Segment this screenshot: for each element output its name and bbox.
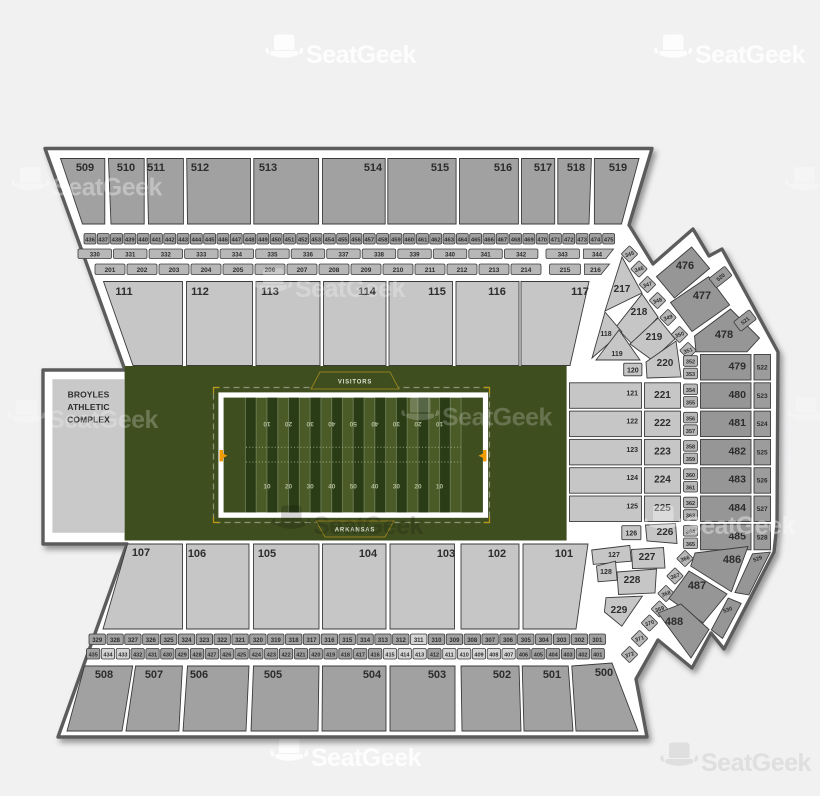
- svg-text:445: 445: [205, 238, 215, 244]
- svg-text:321: 321: [235, 638, 246, 644]
- svg-text:SeatGeek: SeatGeek: [695, 41, 806, 69]
- svg-text:362: 362: [686, 501, 695, 507]
- svg-text:127: 127: [608, 552, 620, 559]
- svg-text:SeatGeek: SeatGeek: [442, 404, 553, 432]
- svg-text:330: 330: [90, 252, 101, 258]
- svg-text:455: 455: [338, 238, 348, 244]
- svg-text:315: 315: [342, 638, 353, 644]
- svg-text:417: 417: [356, 652, 365, 658]
- svg-text:482: 482: [728, 445, 746, 457]
- svg-text:116: 116: [488, 286, 506, 298]
- svg-text:519: 519: [609, 162, 627, 174]
- svg-text:409: 409: [474, 652, 483, 658]
- svg-text:503: 503: [428, 669, 446, 681]
- svg-text:452: 452: [298, 238, 308, 244]
- svg-text:341: 341: [481, 252, 492, 258]
- svg-text:476: 476: [676, 260, 694, 272]
- svg-text:488: 488: [665, 616, 683, 628]
- svg-text:354: 354: [686, 388, 696, 394]
- svg-text:342: 342: [516, 252, 527, 258]
- svg-text:454: 454: [325, 238, 335, 244]
- svg-text:462: 462: [431, 238, 441, 244]
- svg-text:449: 449: [258, 238, 268, 244]
- svg-text:448: 448: [245, 238, 255, 244]
- svg-text:461: 461: [418, 238, 428, 244]
- svg-text:480: 480: [728, 389, 746, 401]
- svg-text:408: 408: [489, 652, 498, 658]
- svg-text:214: 214: [521, 267, 532, 274]
- svg-text:227: 227: [639, 552, 656, 563]
- svg-text:125: 125: [626, 504, 638, 511]
- svg-text:359: 359: [686, 457, 695, 463]
- svg-text:469: 469: [524, 238, 534, 244]
- svg-text:416: 416: [371, 652, 380, 658]
- svg-text:118: 118: [600, 331, 611, 338]
- svg-text:511: 511: [147, 162, 165, 174]
- svg-text:414: 414: [400, 652, 410, 658]
- svg-text:459: 459: [391, 238, 401, 244]
- svg-text:224: 224: [654, 475, 671, 486]
- svg-text:10: 10: [436, 483, 444, 490]
- svg-text:SeatGeek: SeatGeek: [701, 749, 812, 777]
- svg-text:483: 483: [728, 474, 746, 486]
- svg-text:209: 209: [361, 267, 372, 274]
- svg-text:456: 456: [351, 238, 361, 244]
- svg-text:513: 513: [259, 162, 277, 174]
- svg-text:222: 222: [654, 418, 671, 429]
- svg-text:104: 104: [359, 548, 378, 560]
- svg-text:316: 316: [324, 638, 335, 644]
- svg-text:308: 308: [467, 638, 478, 644]
- svg-text:424: 424: [252, 652, 262, 658]
- svg-text:20: 20: [414, 420, 422, 427]
- svg-text:103: 103: [437, 548, 455, 560]
- svg-text:325: 325: [164, 638, 175, 644]
- svg-text:208: 208: [329, 267, 340, 274]
- svg-text:128: 128: [600, 569, 612, 576]
- svg-text:501: 501: [543, 669, 561, 681]
- svg-text:324: 324: [181, 638, 192, 644]
- svg-text:SeatGeek: SeatGeek: [311, 744, 422, 772]
- svg-text:326: 326: [146, 638, 157, 644]
- svg-text:201: 201: [105, 267, 116, 274]
- svg-text:20: 20: [414, 483, 422, 490]
- svg-text:310: 310: [431, 638, 442, 644]
- svg-text:40: 40: [328, 483, 336, 490]
- svg-text:302: 302: [574, 638, 585, 644]
- svg-text:436: 436: [85, 238, 95, 244]
- svg-text:423: 423: [267, 652, 276, 658]
- svg-text:123: 123: [626, 447, 638, 454]
- svg-text:421: 421: [296, 652, 305, 658]
- svg-text:20: 20: [285, 420, 293, 427]
- svg-text:115: 115: [428, 286, 446, 298]
- svg-text:122: 122: [626, 419, 638, 426]
- svg-text:522: 522: [757, 365, 768, 372]
- svg-text:468: 468: [511, 238, 521, 244]
- svg-text:228: 228: [624, 575, 641, 586]
- svg-text:339: 339: [409, 252, 420, 258]
- svg-text:507: 507: [145, 669, 163, 681]
- svg-text:405: 405: [534, 652, 543, 658]
- svg-text:432: 432: [133, 652, 142, 658]
- svg-text:40: 40: [371, 483, 379, 490]
- svg-text:307: 307: [485, 638, 496, 644]
- svg-text:332: 332: [161, 252, 172, 258]
- svg-text:126: 126: [625, 531, 637, 538]
- svg-text:428: 428: [193, 652, 202, 658]
- svg-text:SeatGeek: SeatGeek: [306, 41, 417, 69]
- svg-text:458: 458: [378, 238, 388, 244]
- svg-text:481: 481: [728, 417, 746, 429]
- svg-text:50: 50: [350, 483, 358, 490]
- svg-text:331: 331: [125, 252, 136, 258]
- svg-text:303: 303: [556, 638, 567, 644]
- svg-text:314: 314: [360, 638, 371, 644]
- svg-text:402: 402: [578, 652, 587, 658]
- svg-text:465: 465: [471, 238, 481, 244]
- svg-text:460: 460: [404, 238, 414, 244]
- svg-text:515: 515: [431, 162, 449, 174]
- svg-text:333: 333: [196, 252, 207, 258]
- svg-text:121: 121: [626, 390, 638, 397]
- svg-text:472: 472: [564, 238, 574, 244]
- svg-text:343: 343: [558, 252, 569, 258]
- svg-text:523: 523: [757, 393, 768, 400]
- svg-text:505: 505: [264, 669, 282, 681]
- svg-text:526: 526: [757, 478, 768, 485]
- svg-text:216: 216: [590, 267, 601, 274]
- svg-text:475: 475: [604, 238, 614, 244]
- svg-text:30: 30: [306, 420, 314, 427]
- svg-text:101: 101: [555, 548, 573, 560]
- svg-text:320: 320: [253, 638, 264, 644]
- svg-text:344: 344: [592, 252, 603, 258]
- svg-text:410: 410: [460, 652, 469, 658]
- svg-text:435: 435: [89, 652, 98, 658]
- svg-text:30: 30: [306, 483, 314, 490]
- svg-text:441: 441: [152, 238, 162, 244]
- svg-text:500: 500: [595, 667, 613, 679]
- svg-text:322: 322: [217, 638, 228, 644]
- svg-text:510: 510: [117, 162, 135, 174]
- svg-text:467: 467: [497, 238, 507, 244]
- svg-text:479: 479: [728, 361, 746, 373]
- svg-text:431: 431: [148, 652, 157, 658]
- svg-text:211: 211: [425, 267, 436, 274]
- svg-text:313: 313: [378, 638, 389, 644]
- svg-text:229: 229: [611, 605, 628, 616]
- svg-text:471: 471: [551, 238, 561, 244]
- svg-text:311: 311: [414, 638, 424, 644]
- svg-text:40: 40: [371, 420, 379, 427]
- svg-text:478: 478: [715, 329, 733, 341]
- svg-text:437: 437: [98, 238, 108, 244]
- svg-text:119: 119: [611, 351, 622, 358]
- svg-text:464: 464: [458, 238, 468, 244]
- svg-text:419: 419: [326, 652, 335, 658]
- svg-text:117: 117: [571, 286, 589, 298]
- svg-text:202: 202: [137, 267, 148, 274]
- svg-text:212: 212: [457, 267, 468, 274]
- svg-text:443: 443: [178, 238, 188, 244]
- svg-text:412: 412: [430, 652, 439, 658]
- svg-text:450: 450: [271, 238, 281, 244]
- svg-text:504: 504: [363, 669, 382, 681]
- svg-text:VISITORS: VISITORS: [338, 380, 372, 386]
- svg-text:509: 509: [76, 162, 94, 174]
- svg-text:365: 365: [686, 542, 695, 548]
- svg-text:328: 328: [110, 638, 121, 644]
- svg-text:411: 411: [445, 652, 454, 658]
- svg-text:358: 358: [686, 445, 695, 451]
- svg-text:204: 204: [201, 267, 212, 274]
- svg-text:451: 451: [285, 238, 295, 244]
- svg-text:508: 508: [95, 669, 113, 681]
- svg-text:20: 20: [285, 483, 293, 490]
- svg-text:407: 407: [504, 652, 513, 658]
- svg-text:220: 220: [657, 358, 674, 369]
- svg-text:517: 517: [534, 162, 552, 174]
- svg-text:203: 203: [169, 267, 180, 274]
- svg-text:319: 319: [271, 638, 282, 644]
- svg-text:SeatGeek: SeatGeek: [52, 174, 163, 202]
- svg-text:40: 40: [328, 420, 336, 427]
- svg-text:304: 304: [539, 638, 550, 644]
- svg-text:429: 429: [178, 652, 187, 658]
- svg-text:SeatGeek: SeatGeek: [685, 512, 796, 540]
- svg-text:336: 336: [303, 252, 314, 258]
- svg-text:434: 434: [103, 652, 113, 658]
- svg-text:525: 525: [757, 449, 768, 456]
- svg-text:360: 360: [686, 473, 695, 479]
- svg-text:442: 442: [165, 238, 175, 244]
- svg-text:112: 112: [191, 286, 209, 298]
- svg-text:425: 425: [237, 652, 246, 658]
- svg-text:506: 506: [190, 669, 208, 681]
- svg-text:404: 404: [549, 652, 559, 658]
- svg-text:413: 413: [415, 652, 424, 658]
- svg-text:323: 323: [199, 638, 210, 644]
- svg-text:466: 466: [484, 238, 494, 244]
- svg-text:301: 301: [592, 638, 603, 644]
- svg-text:439: 439: [125, 238, 135, 244]
- svg-text:SeatGeek: SeatGeek: [313, 512, 424, 540]
- svg-text:337: 337: [338, 252, 349, 258]
- svg-text:106: 106: [188, 548, 206, 560]
- svg-text:218: 218: [631, 307, 648, 318]
- svg-text:SeatGeek: SeatGeek: [295, 275, 406, 303]
- svg-text:418: 418: [341, 652, 350, 658]
- svg-text:335: 335: [267, 252, 278, 258]
- svg-text:453: 453: [311, 238, 321, 244]
- svg-text:312: 312: [396, 638, 407, 644]
- svg-text:524: 524: [757, 421, 768, 428]
- svg-text:120: 120: [627, 368, 639, 375]
- svg-text:223: 223: [654, 446, 671, 457]
- svg-text:338: 338: [374, 252, 385, 258]
- svg-text:105: 105: [258, 548, 276, 560]
- svg-text:BROYLES: BROYLES: [68, 390, 110, 400]
- svg-text:447: 447: [231, 238, 241, 244]
- svg-text:305: 305: [521, 638, 532, 644]
- svg-text:446: 446: [218, 238, 228, 244]
- svg-text:474: 474: [591, 238, 601, 244]
- svg-text:215: 215: [560, 267, 571, 274]
- svg-text:309: 309: [449, 638, 460, 644]
- svg-text:440: 440: [138, 238, 148, 244]
- svg-text:329: 329: [92, 638, 103, 644]
- svg-text:317: 317: [306, 638, 317, 644]
- svg-text:355: 355: [686, 401, 695, 407]
- svg-text:512: 512: [191, 162, 209, 174]
- svg-text:221: 221: [654, 390, 671, 401]
- svg-text:487: 487: [688, 580, 706, 592]
- svg-text:361: 361: [686, 485, 695, 491]
- svg-text:430: 430: [163, 652, 172, 658]
- svg-text:107: 107: [132, 547, 150, 559]
- svg-text:50: 50: [349, 420, 357, 427]
- svg-text:401: 401: [593, 652, 602, 658]
- svg-text:30: 30: [392, 420, 400, 427]
- svg-text:518: 518: [567, 162, 585, 174]
- svg-text:318: 318: [289, 638, 300, 644]
- svg-text:306: 306: [503, 638, 514, 644]
- svg-text:420: 420: [311, 652, 320, 658]
- svg-text:SeatGeek: SeatGeek: [48, 406, 159, 434]
- svg-text:356: 356: [686, 416, 695, 422]
- svg-text:422: 422: [282, 652, 291, 658]
- svg-text:10: 10: [263, 420, 271, 427]
- svg-text:470: 470: [537, 238, 547, 244]
- svg-text:30: 30: [393, 483, 401, 490]
- svg-text:433: 433: [118, 652, 127, 658]
- svg-text:427: 427: [207, 652, 216, 658]
- svg-text:426: 426: [222, 652, 231, 658]
- svg-text:357: 357: [686, 429, 695, 435]
- svg-text:205: 205: [233, 267, 244, 274]
- svg-text:486: 486: [723, 554, 741, 566]
- svg-text:327: 327: [128, 638, 139, 644]
- svg-text:403: 403: [563, 652, 572, 658]
- svg-text:415: 415: [385, 652, 394, 658]
- svg-text:217: 217: [614, 284, 631, 295]
- svg-text:111: 111: [115, 286, 132, 298]
- svg-text:353: 353: [686, 372, 695, 378]
- svg-text:210: 210: [393, 267, 404, 274]
- svg-text:124: 124: [626, 475, 638, 482]
- svg-text:463: 463: [444, 238, 454, 244]
- svg-text:334: 334: [232, 252, 243, 258]
- svg-text:352: 352: [686, 360, 695, 366]
- svg-text:477: 477: [693, 290, 711, 302]
- svg-text:502: 502: [493, 669, 511, 681]
- svg-text:340: 340: [445, 252, 456, 258]
- svg-text:406: 406: [519, 652, 528, 658]
- svg-text:213: 213: [489, 267, 500, 274]
- svg-text:516: 516: [494, 162, 512, 174]
- svg-text:457: 457: [364, 238, 374, 244]
- svg-text:207: 207: [297, 267, 308, 274]
- svg-text:219: 219: [646, 332, 663, 343]
- svg-text:102: 102: [488, 548, 506, 560]
- svg-text:10: 10: [263, 483, 271, 490]
- svg-text:473: 473: [577, 238, 587, 244]
- svg-text:438: 438: [112, 238, 122, 244]
- svg-text:514: 514: [364, 162, 383, 174]
- svg-text:444: 444: [192, 238, 202, 244]
